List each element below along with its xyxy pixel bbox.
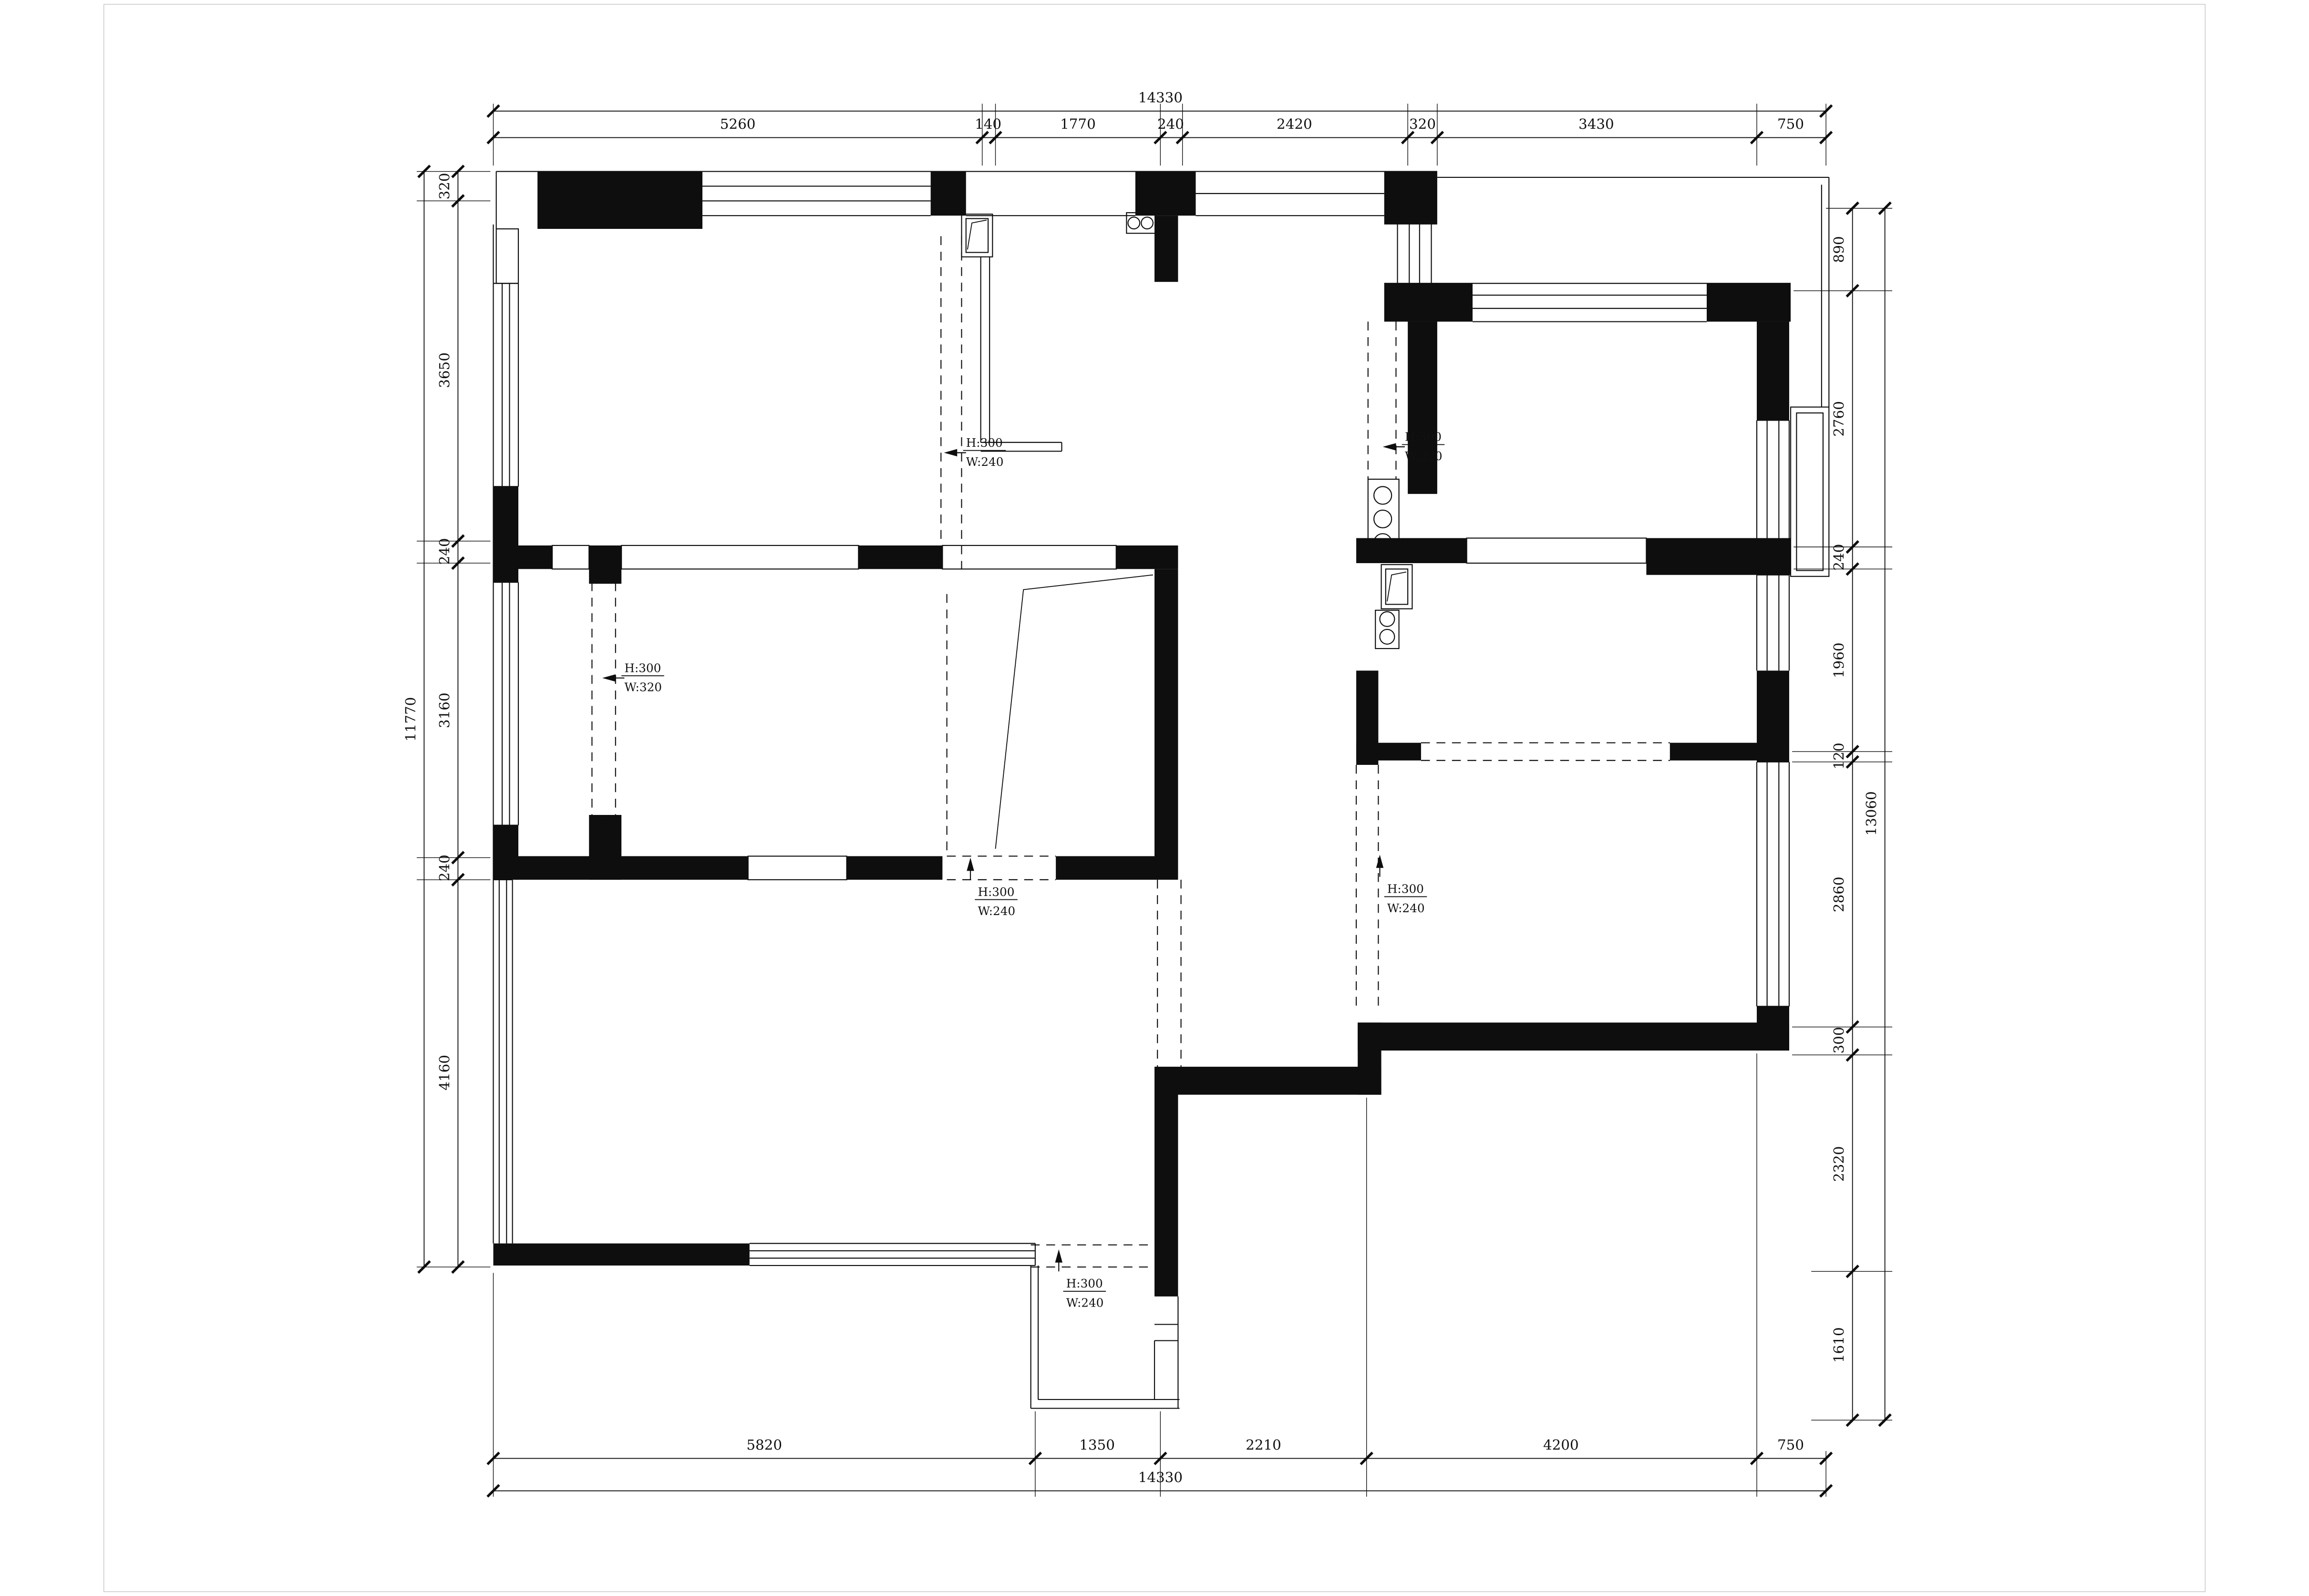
dim-label: 890: [1831, 236, 1847, 263]
fixture-circle-icon: [1380, 629, 1394, 644]
dim-label: 1610: [1831, 1327, 1847, 1363]
dashed-layer: [592, 236, 1670, 1267]
arrow-left-icon: [1383, 443, 1396, 450]
wall-segment: [493, 1244, 749, 1266]
fixture-circle-icon: [1380, 612, 1394, 627]
outline-box: [1467, 538, 1647, 563]
lintel-width-label: W:240: [1066, 1296, 1104, 1309]
dim-label: 2760: [1831, 401, 1847, 437]
arrow-left-icon: [944, 449, 957, 456]
lintel-width-label: W:240: [978, 904, 1015, 918]
dim-label: 4200: [1543, 1437, 1579, 1453]
dim-label: 14330: [1138, 89, 1183, 105]
dim-label: 4160: [436, 1055, 453, 1091]
wall-segment: [1116, 546, 1178, 569]
wall-segment: [1154, 569, 1178, 880]
fixture-circle-icon: [1141, 217, 1153, 229]
dim-chain-left-total: 11770: [402, 165, 430, 1273]
lintel-height-label: H:300: [1066, 1277, 1103, 1290]
dim-chain-right-segments: 89027602401960120286030023201610: [1831, 202, 1858, 1426]
lintel-width-label: W:320: [1405, 449, 1443, 463]
dim-chain-bottom-total: 14330: [487, 1469, 1832, 1497]
dim-label: 140: [975, 116, 1001, 132]
arrow-up-icon: [1376, 855, 1383, 868]
wall-segment: [1154, 1067, 1178, 1297]
dim-label: 750: [1777, 116, 1804, 132]
dim-chain-right-total: 13060: [1863, 202, 1891, 1426]
outline-box: [748, 856, 847, 879]
lintel-width-label: W:240: [1387, 901, 1425, 915]
dim-chain-left-segments: 320365024031602404160: [436, 165, 464, 1273]
wall-segment: [589, 546, 621, 584]
dimensions-layer: 1433052601401770240242032034307505820135…: [402, 89, 1892, 1496]
floor-plan-canvas: 1433052601401770240242032034307505820135…: [0, 0, 2309, 1596]
dim-label: 1770: [1060, 116, 1096, 132]
outline-box: [621, 546, 858, 569]
wall-segment: [493, 825, 518, 880]
wall-segment: [931, 172, 966, 216]
fixture-circle-icon: [1374, 510, 1392, 528]
dim-label: 2860: [1831, 876, 1847, 912]
dim-label: 240: [1157, 116, 1184, 132]
arrow-up-icon: [967, 858, 974, 871]
dim-label: 3650: [436, 352, 453, 388]
lintel-width-label: W:240: [966, 455, 1004, 469]
wall-segment: [493, 546, 552, 569]
dim-label: 240: [436, 538, 453, 565]
lintel-corridor-annotation: H:300W:240: [1376, 855, 1427, 915]
lintel-height-label: H:300: [1387, 882, 1424, 896]
dim-label: 320: [436, 173, 453, 199]
lintel-height-label: H:300: [624, 661, 661, 675]
dim-label: 2320: [1831, 1146, 1847, 1182]
dim-label: 120: [1831, 742, 1847, 769]
dim-chain-top-segments: 5260140177024024203203430750: [487, 116, 1832, 144]
wall-segment: [1384, 283, 1473, 321]
dim-label: 2210: [1246, 1437, 1281, 1453]
dim-label: 5820: [746, 1437, 782, 1453]
dim-label: 320: [1409, 116, 1436, 132]
wall-segment: [1154, 216, 1178, 282]
wall-segment: [1154, 1067, 1381, 1095]
dim-label: 1350: [1079, 1437, 1115, 1453]
wall-segment: [1408, 322, 1437, 494]
lintel-bedroom-left-annotation: H:300W:320: [602, 661, 664, 694]
dim-label: 14330: [1138, 1469, 1183, 1485]
wall-segment: [1356, 538, 1467, 563]
wall-segment: [1757, 1006, 1789, 1050]
dim-label: 240: [436, 855, 453, 881]
lintel-bedroom-door-annotation: H:300W:240: [967, 858, 1018, 918]
wall-segment: [1358, 1022, 1789, 1050]
lintel-height-label: H:300: [978, 885, 1014, 899]
lintel-width-label: W:320: [624, 680, 662, 694]
fixture-circle-icon: [1128, 217, 1140, 229]
wall-segment: [1707, 283, 1791, 321]
wall-segment: [1356, 743, 1421, 761]
outline-box: [966, 218, 988, 252]
outline-box: [552, 546, 589, 569]
dim-label: 5260: [720, 116, 756, 132]
dim-label: 300: [1831, 1027, 1847, 1053]
outline-box: [942, 546, 1116, 569]
outline-box: [496, 229, 518, 283]
dim-chain-bottom-segments: 5820135022104200750: [487, 1437, 1832, 1464]
dim-label: 3160: [436, 692, 453, 728]
dim-label: 13060: [1863, 791, 1879, 835]
flue-icon-diagonal: [968, 220, 987, 249]
wall-segment: [1135, 172, 1196, 216]
wall-segment: [1670, 743, 1758, 761]
dim-label: 750: [1777, 1437, 1804, 1453]
lintel-height-label: H:300: [1405, 430, 1442, 444]
wall-segment: [1757, 670, 1789, 762]
dim-chain-top-total: 14330: [487, 89, 1832, 117]
arrow-left-icon: [602, 674, 616, 681]
lintel-entry-annotation: H:300W:240: [1055, 1249, 1106, 1309]
dim-label: 240: [1831, 544, 1847, 571]
arrow-up-icon: [1055, 1249, 1062, 1263]
wall-segment: [1757, 322, 1789, 421]
wall-segment: [847, 856, 943, 879]
walls-layer: [493, 172, 1791, 1297]
dim-label: 2420: [1277, 116, 1312, 132]
dim-label: 3430: [1578, 116, 1614, 132]
wall-segment: [537, 172, 702, 229]
wall-segment: [1384, 172, 1437, 225]
wall-segment: [1646, 538, 1791, 575]
floor-plan-page: 1433052601401770240242032034307505820135…: [0, 0, 2309, 1596]
fixture-circle-icon: [1374, 486, 1392, 504]
door-swing: [995, 575, 1153, 849]
flue-icon-diagonal: [1387, 572, 1406, 601]
lintel-height-label: H:300: [966, 436, 1003, 450]
wall-segment: [1056, 856, 1154, 879]
wall-segment: [515, 856, 748, 879]
lintel-kitchen-annotation: H:300W:240: [944, 436, 1006, 469]
dim-label: 1960: [1831, 642, 1847, 678]
dim-label: 11770: [402, 697, 419, 741]
wall-segment: [858, 546, 942, 569]
